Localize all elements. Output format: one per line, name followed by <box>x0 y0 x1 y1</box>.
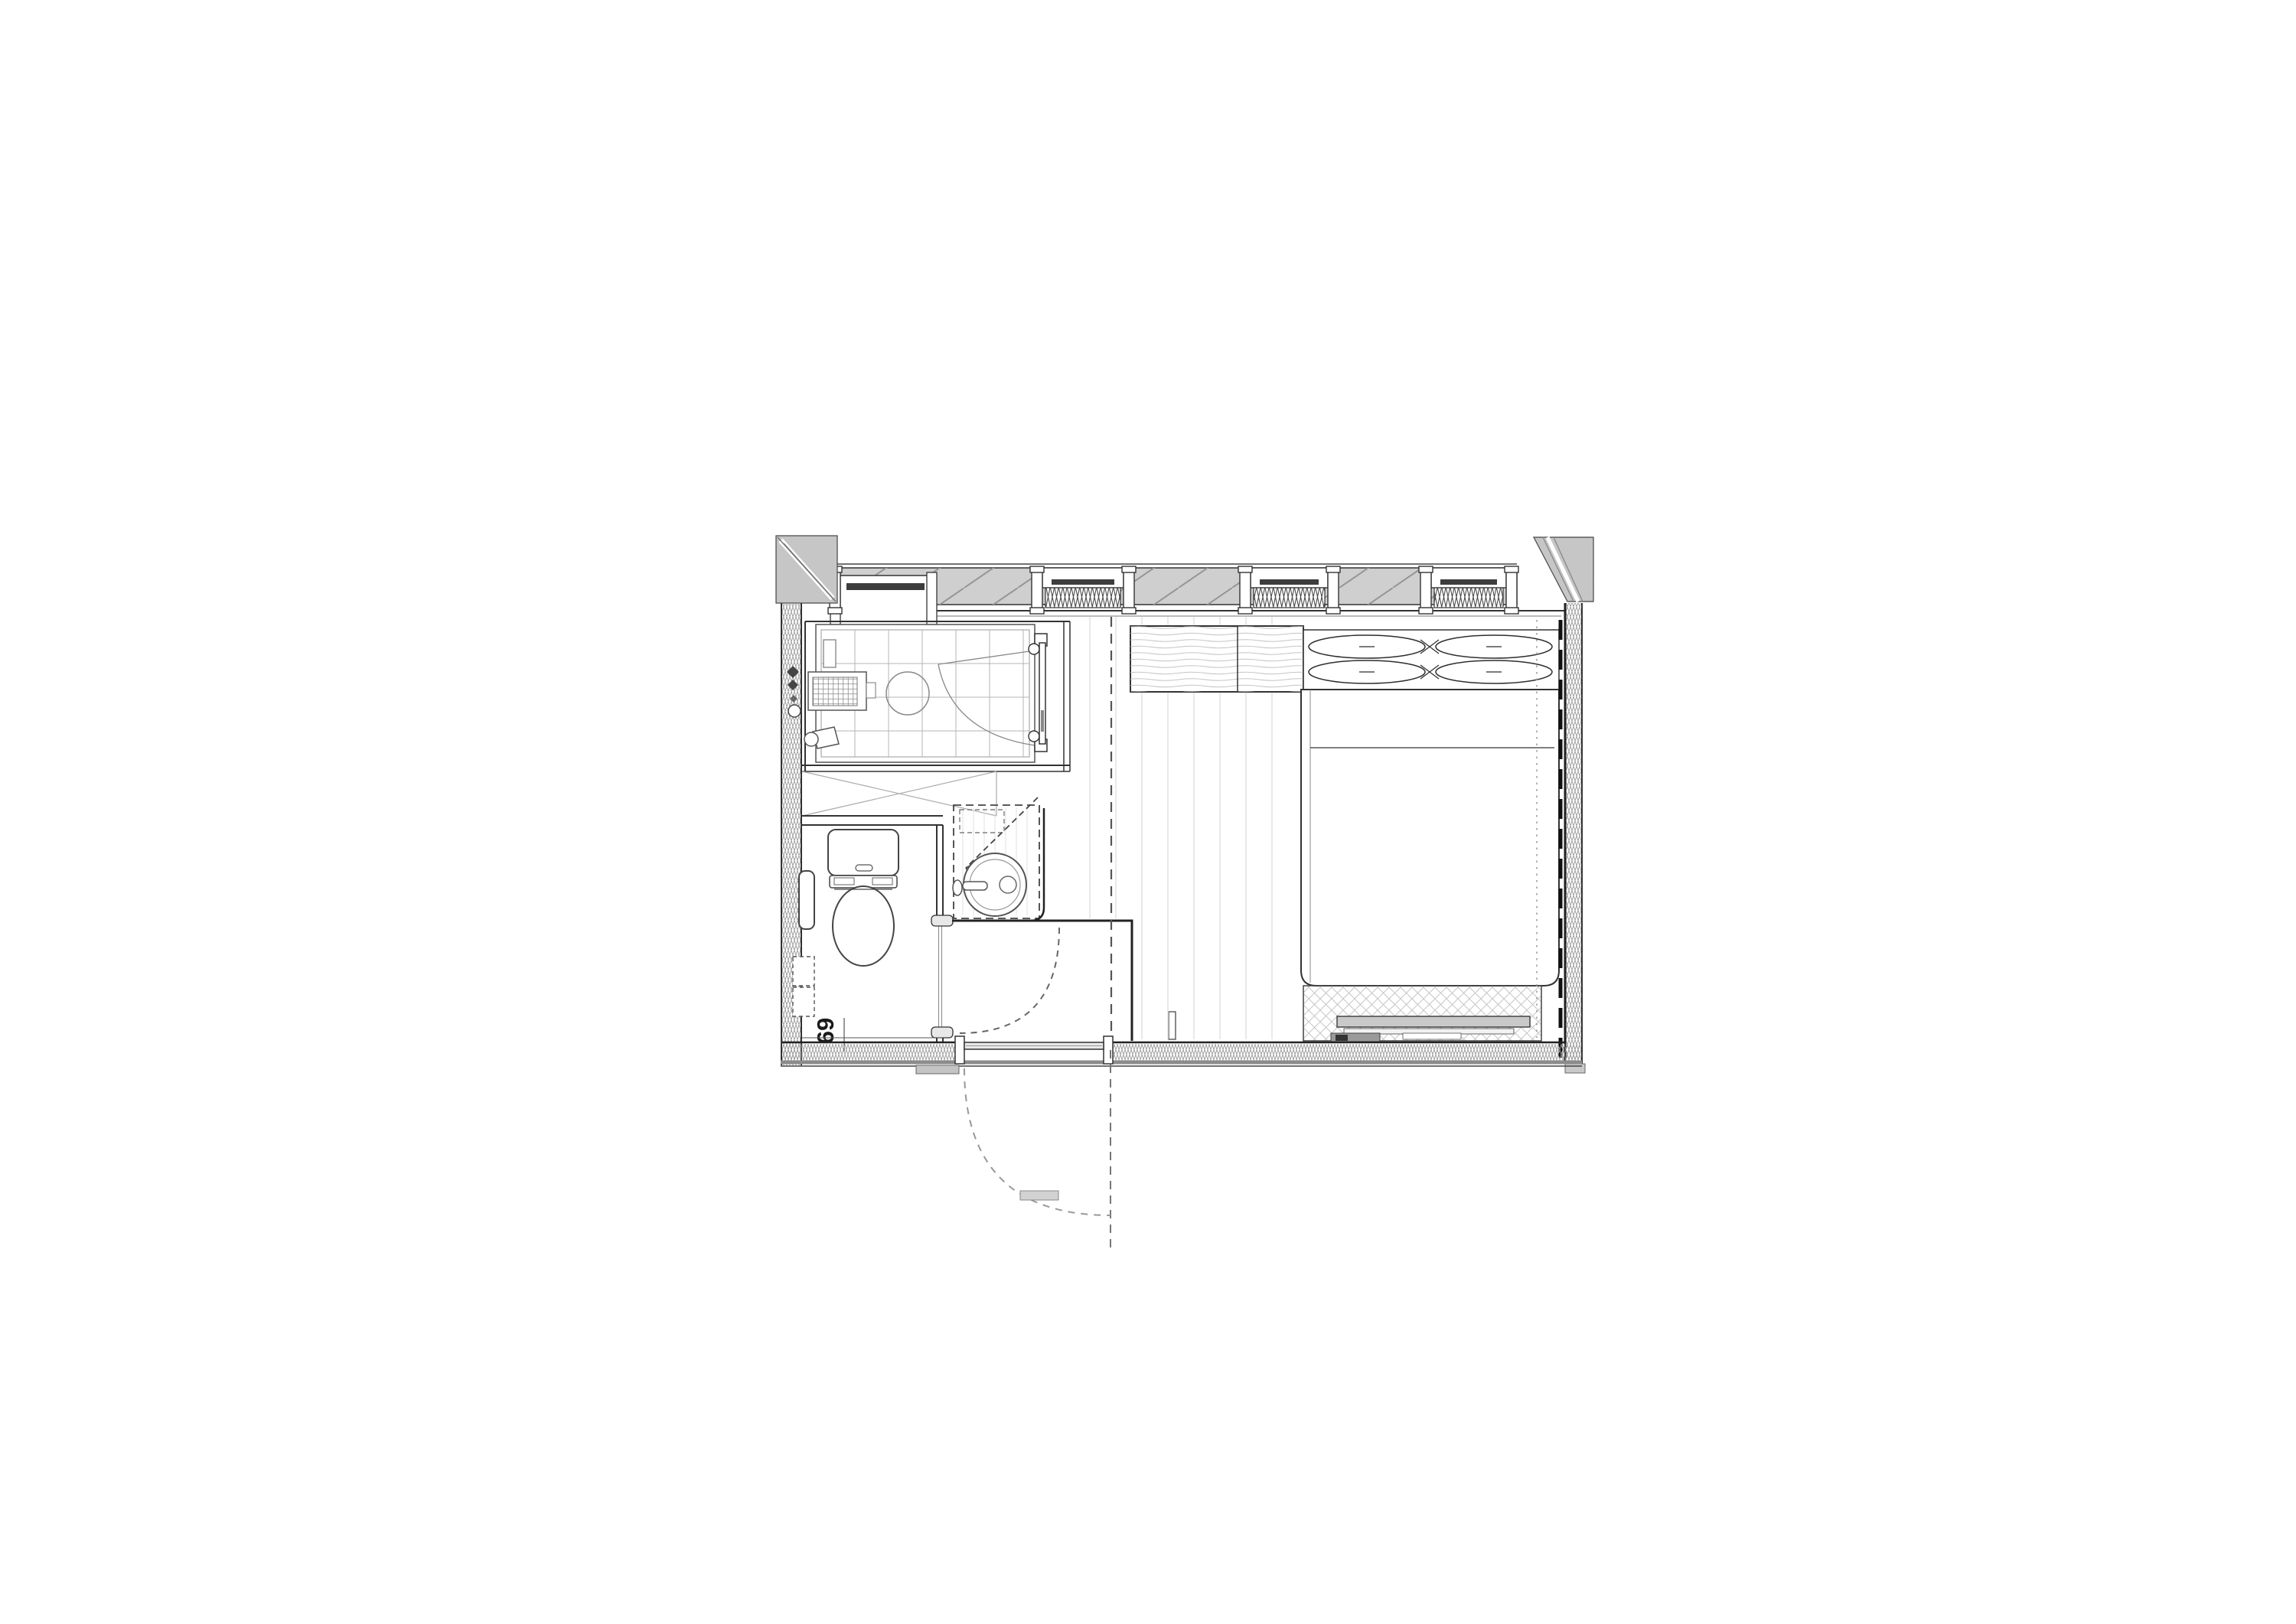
door-stop <box>1169 1012 1176 1039</box>
hinge <box>1029 644 1039 654</box>
roller-blind-box <box>835 576 936 621</box>
bed <box>1301 630 1559 986</box>
window-bay-shower <box>830 572 937 624</box>
entry-sill-step <box>916 1065 959 1074</box>
floor-plan-canvas: 69 <box>0 0 2296 1624</box>
window-bay-2 <box>1251 568 1328 608</box>
mullion <box>1238 566 1252 614</box>
headboard-counter <box>1130 626 1303 692</box>
corner-column-left <box>776 536 837 603</box>
bottom-wall <box>781 1038 1582 1074</box>
roller-blind-bar <box>1260 579 1319 585</box>
pleated-curtain-zigzag <box>1434 588 1503 608</box>
pleated-curtain-zigzag <box>1254 588 1325 608</box>
bay-end-post <box>927 572 937 624</box>
door-jamb <box>955 1036 964 1064</box>
toilet-control-panel <box>799 871 814 929</box>
window-bay-1 <box>1042 568 1124 608</box>
door-hardware <box>931 1027 953 1038</box>
shower-room <box>787 621 1070 771</box>
window-bay-3 <box>1431 568 1506 608</box>
glazing-hatch <box>837 568 1517 605</box>
toilet-bowl <box>833 886 894 966</box>
bed-head-zone <box>1303 630 1559 690</box>
room-number-text: 69 <box>812 1018 839 1044</box>
bench-top <box>1337 1016 1530 1027</box>
corner-column-right <box>1534 537 1593 602</box>
door-hardware <box>931 915 953 926</box>
roller-blind-bar <box>1052 579 1114 585</box>
mullion <box>1030 566 1044 614</box>
hinge <box>1029 731 1039 742</box>
basin-drain <box>1000 876 1016 893</box>
service-zone-cross <box>802 771 996 816</box>
bed-mattress <box>1301 690 1559 986</box>
cabinet-niche-dashed <box>960 810 1004 833</box>
counter-partition <box>1030 808 1044 921</box>
mullion <box>1419 566 1433 614</box>
roller-blind-bar <box>1440 579 1497 585</box>
window-wall <box>828 564 1565 624</box>
corridor-step <box>1020 1191 1058 1200</box>
toilet-room: 69 <box>793 816 953 1052</box>
toilet <box>799 830 899 966</box>
roller-blind-box <box>1251 568 1328 588</box>
roller-blind-box <box>1042 568 1124 588</box>
wall-end-tab <box>1565 1064 1585 1073</box>
door-handle <box>1041 710 1044 732</box>
mullion <box>1122 566 1136 614</box>
toilet-door-swing-arc <box>960 928 1059 1033</box>
right-wall <box>1565 603 1585 1073</box>
floor-plan-page: 69 <box>0 0 2296 1624</box>
entry-door <box>955 1036 1113 1251</box>
mullion <box>1505 566 1518 614</box>
pleated-curtain-zigzag <box>1045 588 1120 608</box>
hall-boundary <box>952 921 1132 1041</box>
luggage-mat <box>1303 986 1541 1042</box>
door-jamb <box>1104 1036 1113 1064</box>
bench-foot-pad <box>1336 1035 1348 1041</box>
bench-foot <box>1403 1033 1461 1039</box>
roller-blind-bar <box>846 583 925 590</box>
washbasin-area <box>953 797 1044 921</box>
shower-drain <box>808 672 876 710</box>
shower-niche <box>823 640 836 667</box>
mullion <box>1326 566 1340 614</box>
roller-blind-box <box>1431 568 1506 588</box>
shower-head <box>804 727 839 748</box>
